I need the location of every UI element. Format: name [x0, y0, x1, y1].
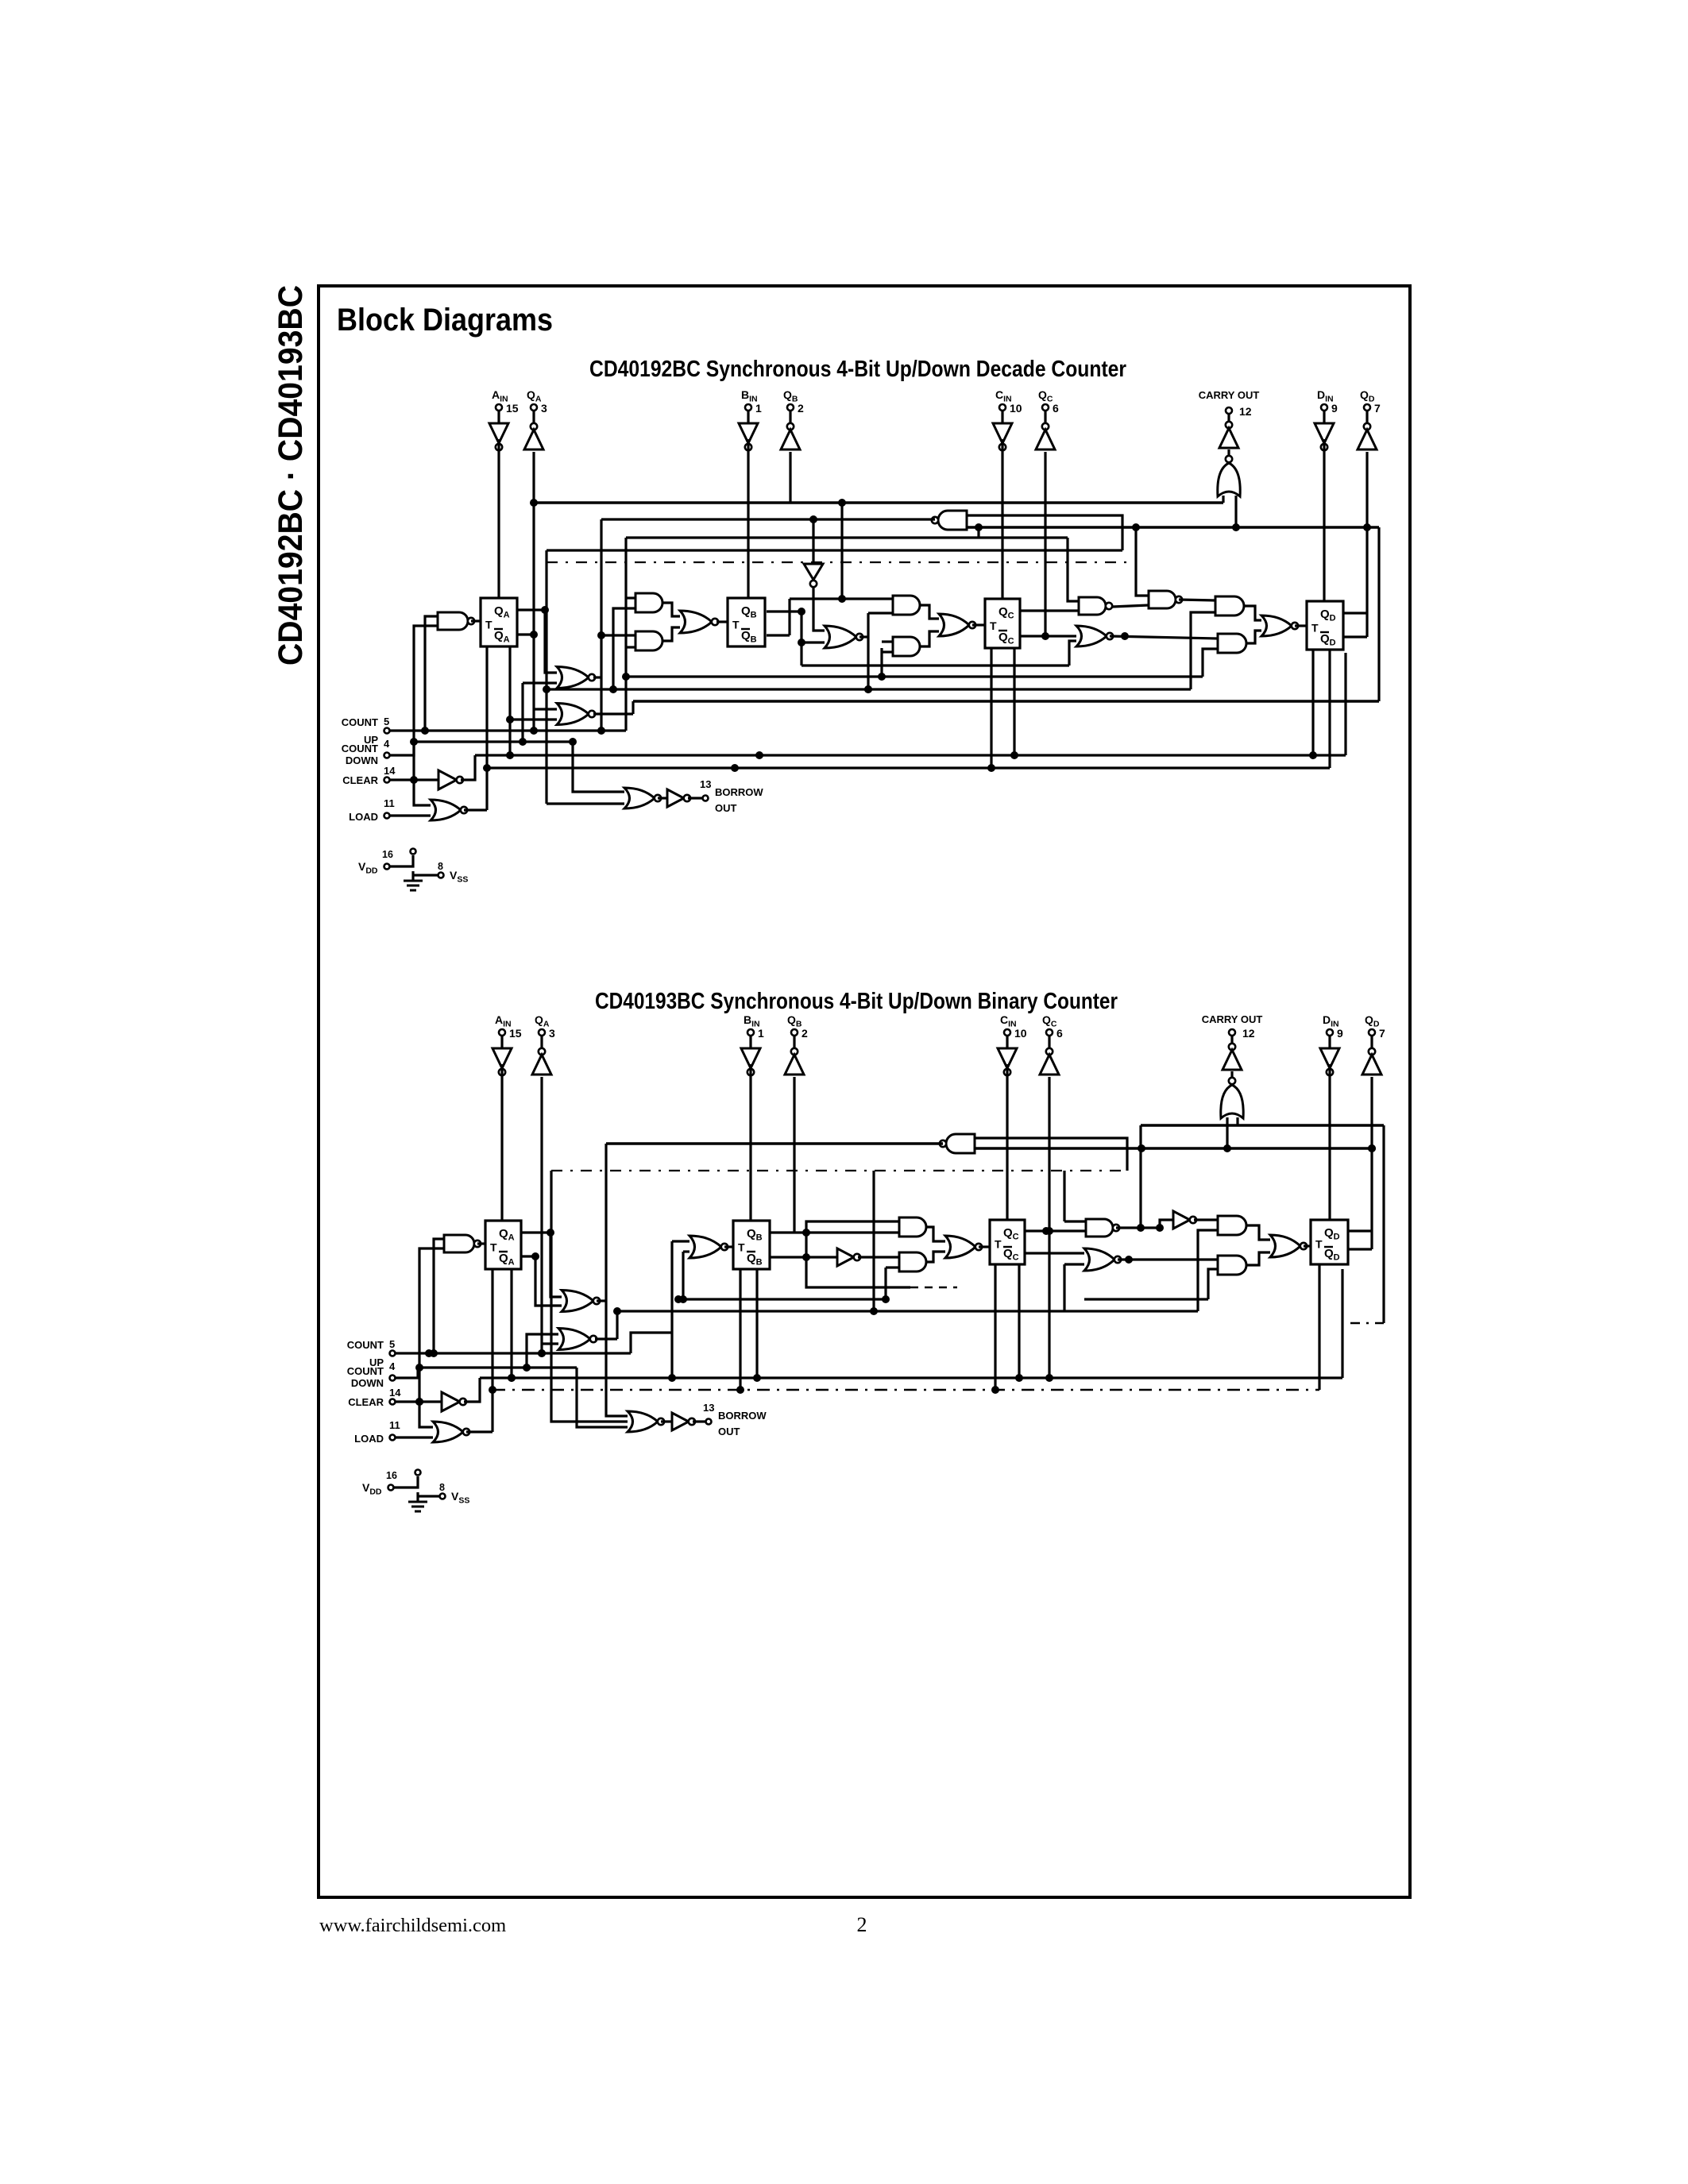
svg-text:7: 7	[1379, 1027, 1385, 1040]
svg-text:11: 11	[389, 1419, 400, 1431]
svg-text:www.fairchildsemi.com: www.fairchildsemi.com	[319, 1915, 506, 1936]
svg-text:T: T	[990, 619, 997, 632]
svg-text:T: T	[485, 618, 492, 631]
svg-text:DOWN: DOWN	[346, 754, 378, 766]
svg-text:8: 8	[439, 1482, 445, 1493]
svg-text:13: 13	[700, 778, 711, 790]
svg-text:3: 3	[549, 1027, 555, 1040]
svg-text:CD40192BC Synchronous 4-Bit Up: CD40192BC Synchronous 4-Bit Up/Down Deca…	[589, 357, 1126, 382]
svg-text:CARRY OUT: CARRY OUT	[1199, 389, 1260, 401]
svg-text:BORROW: BORROW	[715, 786, 763, 798]
svg-text:2: 2	[857, 1913, 867, 1936]
svg-text:12: 12	[1239, 405, 1252, 418]
svg-text:BORROW: BORROW	[718, 1410, 767, 1422]
svg-text:CARRY OUT: CARRY OUT	[1202, 1013, 1263, 1025]
svg-text:16: 16	[386, 1470, 397, 1481]
svg-text:5: 5	[384, 716, 389, 727]
svg-text:2: 2	[798, 402, 804, 415]
svg-text:10: 10	[1014, 1027, 1027, 1040]
svg-text:12: 12	[1242, 1027, 1255, 1040]
svg-text:COUNT: COUNT	[347, 1365, 384, 1377]
svg-text:3: 3	[541, 402, 547, 415]
svg-text:T: T	[738, 1241, 745, 1253]
svg-text:COUNT: COUNT	[342, 743, 378, 754]
svg-text:13: 13	[703, 1402, 714, 1414]
svg-text:OUT: OUT	[715, 802, 737, 814]
svg-text:6: 6	[1053, 402, 1059, 415]
svg-text:Block Diagrams: Block Diagrams	[337, 303, 553, 338]
svg-text:5: 5	[389, 1338, 395, 1350]
svg-text:16: 16	[382, 849, 393, 860]
svg-text:COUNT: COUNT	[342, 716, 378, 728]
svg-text:LOAD: LOAD	[349, 811, 378, 823]
svg-text:14: 14	[389, 1387, 401, 1399]
svg-text:1: 1	[758, 1027, 764, 1040]
svg-text:6: 6	[1056, 1027, 1063, 1040]
svg-text:DOWN: DOWN	[351, 1377, 384, 1389]
svg-text:CLEAR: CLEAR	[348, 1396, 384, 1408]
svg-text:4: 4	[389, 1360, 396, 1372]
svg-text:4: 4	[384, 738, 390, 750]
svg-text:T: T	[732, 618, 740, 631]
svg-text:CLEAR: CLEAR	[342, 774, 378, 786]
svg-text:T: T	[1311, 621, 1319, 634]
svg-text:14: 14	[384, 765, 396, 777]
svg-text:15: 15	[509, 1027, 522, 1040]
svg-text:CD40193BC Synchronous 4-Bit Up: CD40193BC Synchronous 4-Bit Up/Down Bina…	[595, 989, 1118, 1014]
svg-text:11: 11	[384, 797, 395, 809]
svg-text:OUT: OUT	[718, 1426, 740, 1437]
svg-text:CD40192BC · CD40193BC: CD40192BC · CD40193BC	[272, 285, 310, 666]
svg-text:T: T	[490, 1241, 497, 1253]
svg-text:15: 15	[506, 402, 519, 415]
svg-text:8: 8	[438, 861, 443, 872]
svg-text:T: T	[995, 1237, 1002, 1250]
svg-text:7: 7	[1374, 402, 1381, 415]
svg-text:LOAD: LOAD	[354, 1433, 384, 1445]
svg-text:1: 1	[755, 402, 762, 415]
svg-text:9: 9	[1337, 1027, 1343, 1040]
svg-text:COUNT: COUNT	[347, 1339, 384, 1351]
svg-text:2: 2	[802, 1027, 808, 1040]
svg-text:10: 10	[1010, 402, 1022, 415]
svg-text:9: 9	[1331, 402, 1338, 415]
svg-text:T: T	[1315, 1237, 1323, 1250]
